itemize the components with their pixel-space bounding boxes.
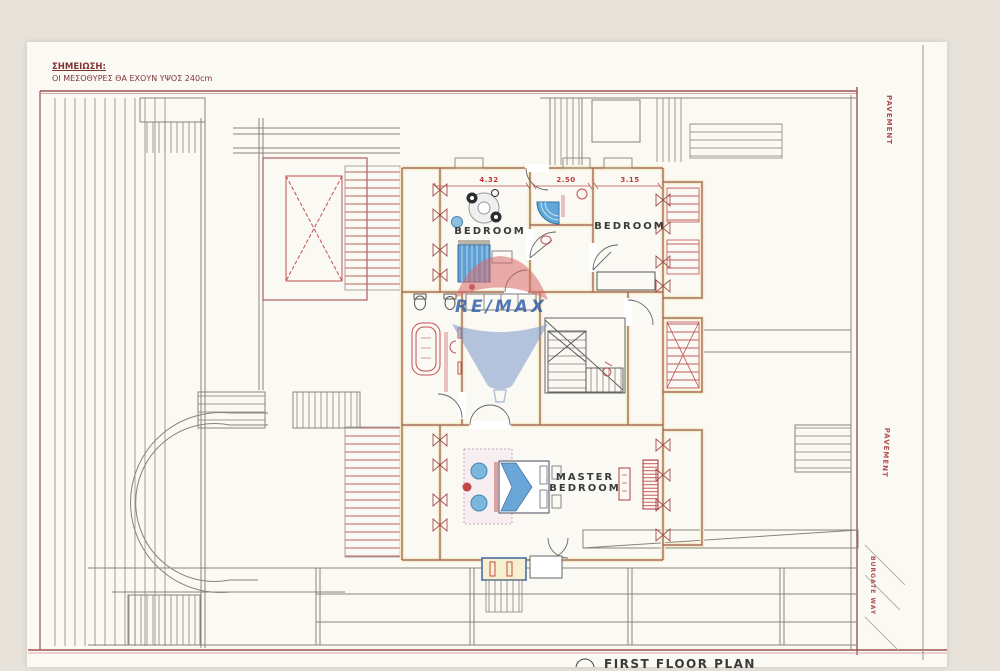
remax-wordmark: RE/MAX [455,297,547,317]
master-line1: MASTER [549,472,620,483]
room-label-bedroom-right: BEDROOM [594,221,665,232]
note-block: ΣΗΜΕΙΩΣΗ: ΟΙ ΜΕΣΟΘΥΡΕΣ ΘΑ ΕΧΟΥΝ ΥΨΟΣ 240… [52,62,212,84]
note-title: ΣΗΜΕΙΩΣΗ: [52,62,212,73]
left-terrace-joists [46,98,263,648]
remax-balloon-watermark [452,256,548,402]
plan-caption: FIRST FLOOR PLAN [604,657,756,671]
pavement-label-upper: PAVEMENT [885,95,893,145]
dimension-middle: 2.50 [556,176,575,184]
plan-linework [0,0,1000,667]
porch [482,556,562,612]
balloon-basket [494,390,506,402]
street-label: BURGATE WAY [869,556,876,615]
staircase [545,318,625,393]
dimension-left: 4.32 [479,176,498,184]
dimension-right: 3.15 [620,176,639,184]
pergola-slats [345,166,400,557]
room-label-bedroom-left: BEDROOM [454,226,525,237]
note-body: ΟΙ ΜΕΣΟΘΥΡΕΣ ΘΑ ΕΧΟΥΝ ΥΨΟΣ 240cm [52,73,212,84]
balcony-louvers [667,188,699,388]
room-label-master: MASTER BEDROOM [549,472,620,494]
master-line2: BEDROOM [549,483,620,494]
caption-symbol [576,659,594,667]
scanned-floor-plan: ΣΗΜΕΙΩΣΗ: ΟΙ ΜΕΣΟΘΥΡΕΣ ΘΑ ΕΧΟΥΝ ΥΨΟΣ 240… [0,0,1000,667]
balloon-bottom [452,324,548,390]
